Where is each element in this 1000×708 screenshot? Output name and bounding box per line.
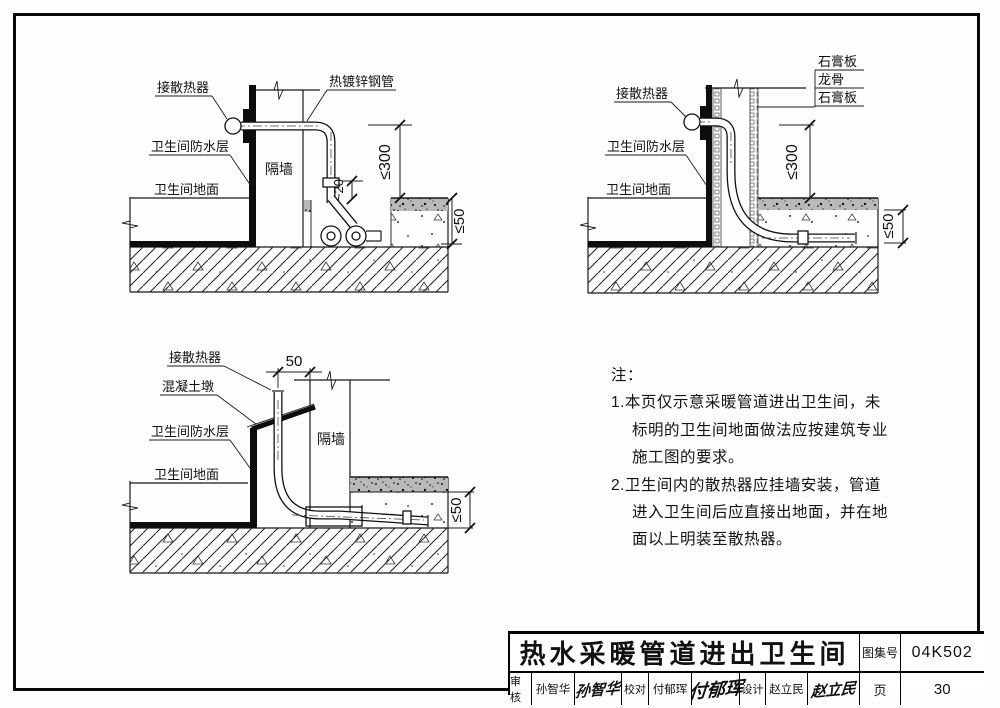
checker-label: 校对 bbox=[622, 673, 649, 705]
title-block-row-1: 热水采暖管道进出卫生间 图集号 04K502 bbox=[510, 634, 984, 673]
note-line: 2.卫生间内的散热器应挂墙安装，管道 bbox=[611, 472, 916, 499]
reviewer-name: 孙智华 bbox=[532, 673, 575, 705]
reviewer-label: 审核 bbox=[510, 673, 532, 705]
dim-offset-text: 50 bbox=[286, 353, 303, 370]
dim-50-text: ≤50 bbox=[880, 214, 897, 239]
designer-label: 设计 bbox=[740, 673, 766, 705]
title-block: 热水采暖管道进出卫生间 图集号 04K502 审核 孙智华 孙智华 校对 付郁珲… bbox=[508, 631, 984, 695]
detail-2-dim-300: ≤300 bbox=[779, 120, 815, 203]
atlas-number-value: 04K502 bbox=[901, 634, 984, 671]
reviewer-signature: 孙智华 bbox=[575, 673, 622, 705]
pipe-label: 热镀锌钢管 bbox=[329, 74, 394, 89]
detail-2-dim-50: ≤50 bbox=[880, 205, 908, 248]
keel-label: 龙骨 bbox=[818, 72, 844, 87]
atlas-number-label: 图集号 bbox=[860, 634, 901, 671]
note-line: 标明的卫生间地面做法应按建筑专业 bbox=[611, 417, 916, 444]
detail-1-dim-20: ~20 bbox=[331, 176, 363, 204]
detail-2-slab bbox=[588, 247, 878, 293]
detail-1-labels: 接散热器 热镀锌钢管 卫生间防水层 卫生间地面 bbox=[149, 74, 396, 197]
wall-label: 隔墙 bbox=[317, 431, 345, 447]
break-symbol bbox=[122, 215, 138, 234]
designer-signature: 赵立民 bbox=[808, 673, 860, 705]
pipe-coupling bbox=[798, 231, 808, 244]
sheet-title: 热水采暖管道进出卫生间 bbox=[510, 634, 860, 671]
floor-label: 卫生间地面 bbox=[606, 182, 671, 197]
note-line: 施工图的要求。 bbox=[611, 444, 916, 471]
gypsum-board-label: 石膏板 bbox=[818, 90, 857, 105]
detail-2: ≤300 ≤50 石膏板 龙骨 石膏板 接散热器 bbox=[580, 54, 908, 293]
pipe-coupling bbox=[403, 511, 411, 524]
waterproof-label: 卫生间防水层 bbox=[151, 139, 229, 154]
dim-50-text: ≤50 bbox=[451, 209, 468, 234]
signature-text: 孙智华 bbox=[575, 676, 622, 701]
radiator-label: 接散热器 bbox=[157, 80, 209, 95]
note-line: 进入卫生间后应直接出地面，并在地 bbox=[611, 499, 916, 526]
checker-name: 付郁珲 bbox=[649, 673, 692, 705]
dim-300-text: ≤300 bbox=[784, 144, 801, 180]
detail-3-dim-offset: 50 bbox=[266, 353, 322, 388]
break-symbol bbox=[122, 497, 138, 516]
dim-300-text: ≤300 bbox=[377, 144, 394, 180]
detail-1: 隔墙 bbox=[122, 74, 468, 292]
floor-label: 卫生间地面 bbox=[154, 467, 219, 482]
dim-50-text: ≤50 bbox=[448, 498, 465, 523]
title-block-row-2: 审核 孙智华 孙智华 校对 付郁珲 付郁珲 设计 赵立民 赵立民 页 30 bbox=[510, 673, 984, 705]
detail-1-slab bbox=[130, 247, 448, 292]
radiator-connection bbox=[684, 114, 700, 130]
page-number: 30 bbox=[901, 673, 984, 705]
wall-label: 隔墙 bbox=[265, 161, 293, 177]
checker-signature: 付郁珲 bbox=[692, 673, 740, 705]
gypsum-board-label: 石膏板 bbox=[818, 54, 857, 69]
notes-heading: 注： bbox=[611, 362, 916, 389]
detail-3-waterproof-membrane bbox=[130, 404, 315, 528]
signature-text: 赵立民 bbox=[810, 676, 857, 701]
radiator-label: 接散热器 bbox=[616, 86, 668, 101]
signature-text: 付郁珲 bbox=[687, 673, 743, 704]
designer-name: 赵立民 bbox=[766, 673, 808, 705]
radiator-label: 接散热器 bbox=[169, 350, 221, 365]
page-label: 页 bbox=[860, 673, 901, 705]
dim-20-text: ~20 bbox=[331, 179, 346, 201]
break-symbol bbox=[580, 217, 596, 236]
drawing-sheet: 隔墙 bbox=[0, 0, 1000, 708]
waterproof-label: 卫生间防水层 bbox=[607, 139, 685, 154]
floor-label: 卫生间地面 bbox=[154, 182, 219, 197]
detail-3-slab bbox=[130, 528, 448, 573]
detail-3: 隔墙 5 bbox=[122, 350, 475, 573]
notes-block: 注： 1.本页仅示意采暖管道进出卫生间，未 标明的卫生间地面做法应按建筑专业 施… bbox=[611, 362, 916, 554]
radiator-connection bbox=[225, 118, 241, 134]
note-line: 面以上明装至散热器。 bbox=[611, 526, 916, 553]
detail-3-dim-50: ≤50 bbox=[448, 487, 475, 533]
details-canvas: 隔墙 bbox=[0, 0, 1000, 708]
note-line: 1.本页仅示意采暖管道进出卫生间，未 bbox=[611, 389, 916, 416]
concrete-pier-label: 混凝土墩 bbox=[162, 379, 214, 394]
waterproof-label: 卫生间防水层 bbox=[151, 424, 229, 439]
detail-1-dim-300: ≤300 bbox=[368, 120, 412, 203]
